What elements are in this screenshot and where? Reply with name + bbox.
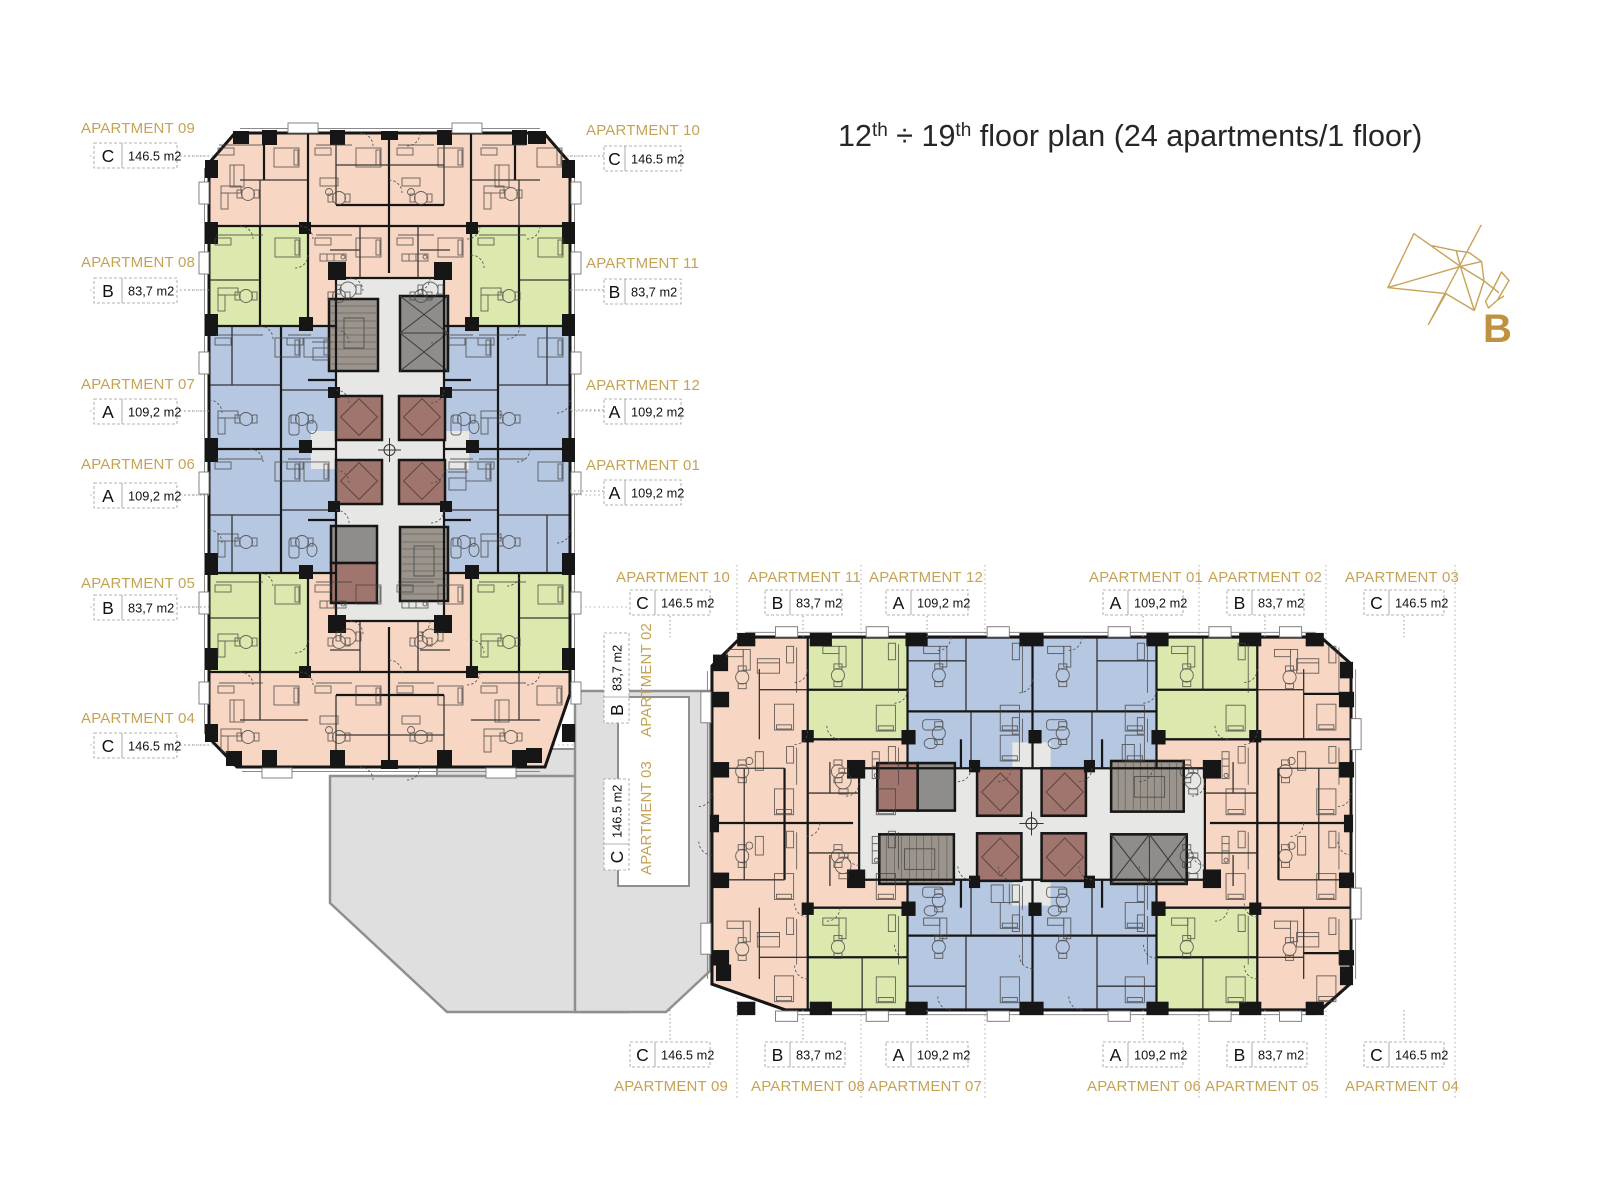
svg-text:C: C bbox=[102, 146, 115, 166]
svg-text:C: C bbox=[608, 149, 621, 169]
svg-text:109,2 m2: 109,2 m2 bbox=[128, 489, 181, 504]
svg-text:APARTMENT 04: APARTMENT 04 bbox=[1345, 1078, 1459, 1095]
svg-text:APARTMENT 11: APARTMENT 11 bbox=[748, 569, 861, 586]
svg-text:12th ÷ 19th floor plan (24 apa: 12th ÷ 19th floor plan (24 apartments/1 … bbox=[838, 119, 1422, 153]
svg-text:146.5 m2: 146.5 m2 bbox=[610, 785, 625, 838]
svg-text:APARTMENT 05: APARTMENT 05 bbox=[81, 575, 195, 592]
svg-text:B: B bbox=[1483, 307, 1512, 351]
svg-text:A: A bbox=[1110, 593, 1122, 613]
svg-text:146.5 m2: 146.5 m2 bbox=[661, 1048, 714, 1063]
svg-text:C: C bbox=[607, 851, 627, 864]
svg-text:B: B bbox=[772, 1045, 784, 1065]
svg-text:146.5 m2: 146.5 m2 bbox=[631, 152, 684, 167]
svg-text:APARTMENT 02: APARTMENT 02 bbox=[1208, 569, 1322, 586]
svg-text:APARTMENT 09: APARTMENT 09 bbox=[81, 120, 195, 137]
svg-text:APARTMENT 07: APARTMENT 07 bbox=[81, 376, 195, 393]
svg-text:A: A bbox=[1110, 1045, 1122, 1065]
svg-text:APARTMENT 10: APARTMENT 10 bbox=[586, 122, 700, 139]
svg-text:109,2 m2: 109,2 m2 bbox=[631, 405, 684, 420]
svg-text:APARTMENT 12: APARTMENT 12 bbox=[586, 377, 700, 394]
svg-text:109,2 m2: 109,2 m2 bbox=[1134, 596, 1187, 611]
svg-text:109,2 m2: 109,2 m2 bbox=[917, 1048, 970, 1063]
svg-text:APARTMENT 04: APARTMENT 04 bbox=[81, 710, 195, 727]
svg-text:83,7 m2: 83,7 m2 bbox=[1258, 596, 1304, 611]
svg-text:A: A bbox=[609, 483, 621, 503]
svg-text:B: B bbox=[1234, 593, 1246, 613]
svg-text:APARTMENT 05: APARTMENT 05 bbox=[1205, 1078, 1319, 1095]
svg-text:B: B bbox=[102, 598, 114, 618]
svg-text:146.5 m2: 146.5 m2 bbox=[1395, 596, 1448, 611]
svg-text:83,7 m2: 83,7 m2 bbox=[128, 601, 174, 616]
svg-text:APARTMENT 08: APARTMENT 08 bbox=[751, 1078, 865, 1095]
svg-text:83,7 m2: 83,7 m2 bbox=[610, 645, 625, 691]
svg-text:C: C bbox=[1370, 1045, 1383, 1065]
svg-text:83,7 m2: 83,7 m2 bbox=[1258, 1048, 1304, 1063]
svg-text:A: A bbox=[102, 402, 114, 422]
svg-text:C: C bbox=[1370, 593, 1383, 613]
svg-text:109,2 m2: 109,2 m2 bbox=[1134, 1048, 1187, 1063]
svg-text:A: A bbox=[893, 1045, 905, 1065]
svg-text:C: C bbox=[102, 736, 115, 756]
svg-text:B: B bbox=[1234, 1045, 1246, 1065]
svg-text:B: B bbox=[102, 281, 114, 301]
svg-text:APARTMENT 02: APARTMENT 02 bbox=[638, 623, 655, 737]
svg-text:APARTMENT 06: APARTMENT 06 bbox=[81, 456, 195, 473]
svg-text:146.5 m2: 146.5 m2 bbox=[128, 739, 181, 754]
svg-text:83,7 m2: 83,7 m2 bbox=[128, 284, 174, 299]
svg-text:109,2 m2: 109,2 m2 bbox=[631, 486, 684, 501]
svg-text:109,2 m2: 109,2 m2 bbox=[917, 596, 970, 611]
svg-text:APARTMENT 12: APARTMENT 12 bbox=[869, 569, 983, 586]
svg-text:APARTMENT 06: APARTMENT 06 bbox=[1087, 1078, 1201, 1095]
svg-text:C: C bbox=[636, 1045, 649, 1065]
svg-text:83,7 m2: 83,7 m2 bbox=[796, 596, 842, 611]
svg-text:B: B bbox=[609, 282, 621, 302]
svg-text:B: B bbox=[607, 704, 627, 716]
svg-text:APARTMENT 01: APARTMENT 01 bbox=[586, 457, 700, 474]
svg-text:APARTMENT 08: APARTMENT 08 bbox=[81, 254, 195, 271]
svg-text:146.5 m2: 146.5 m2 bbox=[661, 596, 714, 611]
svg-text:APARTMENT 11: APARTMENT 11 bbox=[586, 255, 699, 272]
svg-text:A: A bbox=[893, 593, 905, 613]
svg-text:83,7 m2: 83,7 m2 bbox=[631, 285, 677, 300]
svg-text:A: A bbox=[609, 402, 621, 422]
svg-text:146.5 m2: 146.5 m2 bbox=[128, 149, 181, 164]
svg-text:APARTMENT 07: APARTMENT 07 bbox=[868, 1078, 982, 1095]
svg-text:APARTMENT 01: APARTMENT 01 bbox=[1089, 569, 1203, 586]
svg-text:C: C bbox=[636, 593, 649, 613]
svg-text:A: A bbox=[102, 486, 114, 506]
svg-text:APARTMENT 10: APARTMENT 10 bbox=[616, 569, 730, 586]
svg-text:APARTMENT 09: APARTMENT 09 bbox=[614, 1078, 728, 1095]
svg-text:B: B bbox=[772, 593, 784, 613]
svg-text:APARTMENT 03: APARTMENT 03 bbox=[1345, 569, 1459, 586]
svg-text:APARTMENT 03: APARTMENT 03 bbox=[638, 761, 655, 875]
svg-text:146.5 m2: 146.5 m2 bbox=[1395, 1048, 1448, 1063]
svg-text:83,7 m2: 83,7 m2 bbox=[796, 1048, 842, 1063]
svg-text:109,2 m2: 109,2 m2 bbox=[128, 405, 181, 420]
